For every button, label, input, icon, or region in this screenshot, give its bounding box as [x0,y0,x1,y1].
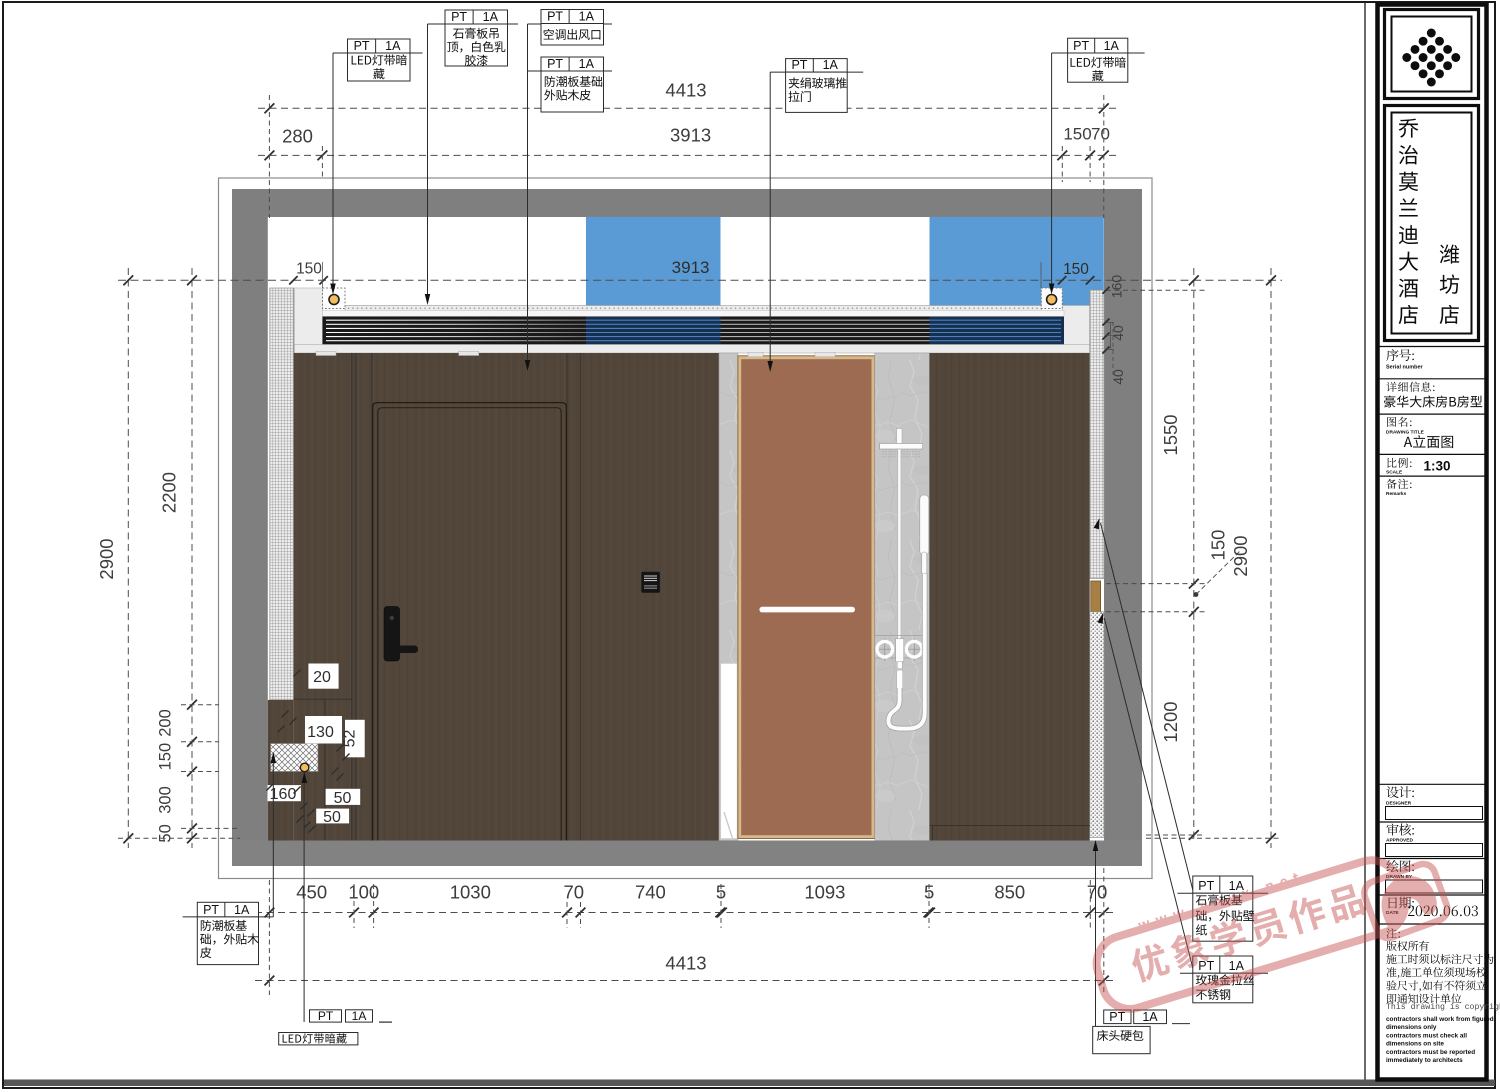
svg-text:52: 52 [342,730,359,748]
svg-text:130: 130 [307,724,334,741]
svg-text:1A: 1A [234,903,250,917]
svg-text:3913: 3913 [670,125,711,146]
svg-text:1A: 1A [352,1009,367,1023]
svg-text:450: 450 [296,882,327,903]
svg-text:300: 300 [157,786,175,814]
svg-text:50: 50 [323,809,341,826]
svg-text:immediately to architects: immediately to architects [1386,1057,1463,1064]
svg-text:PT: PT [318,1009,334,1023]
svg-text:150: 150 [1063,261,1089,278]
svg-text:280: 280 [282,126,313,147]
svg-text:PT: PT [354,39,370,53]
svg-text:40: 40 [1110,369,1126,385]
svg-text:40: 40 [1110,325,1126,341]
svg-text:dimensions on site: dimensions on site [1386,1041,1444,1048]
svg-text:3913: 3913 [672,258,710,277]
svg-text:1A: 1A [1104,39,1120,53]
svg-text:1A: 1A [385,39,401,53]
svg-text:70: 70 [564,882,585,903]
svg-text:200: 200 [157,709,175,737]
svg-text:1200: 1200 [1160,701,1181,742]
svg-text:PT: PT [1198,879,1214,893]
svg-text:2900: 2900 [96,538,117,579]
svg-text:PT: PT [1073,39,1089,53]
svg-text:150: 150 [1208,530,1229,561]
svg-text:1A: 1A [1229,879,1245,893]
svg-text:contractors must check all: contractors must check all [1386,1032,1467,1039]
svg-text:100: 100 [348,882,379,903]
svg-text:1550: 1550 [1160,414,1181,455]
svg-text:70: 70 [1087,882,1108,903]
svg-text:contractors shall work from fi: contractors shall work from figured [1386,1016,1494,1023]
svg-text:1093: 1093 [804,882,845,903]
svg-text:SCALE: SCALE [1386,470,1403,476]
svg-text:20: 20 [313,669,331,686]
svg-text:Remarks: Remarks [1386,491,1407,497]
svg-text:PT: PT [547,57,563,71]
svg-text:4413: 4413 [665,80,706,101]
svg-text:150: 150 [296,261,322,278]
svg-text:50: 50 [157,824,175,842]
svg-text:50: 50 [334,790,352,807]
svg-text:PT: PT [1198,959,1214,973]
svg-text:This drawing is copyright: This drawing is copyright [1386,1002,1500,1012]
svg-text:1A: 1A [1142,1010,1158,1024]
svg-text:APPROVED: APPROVED [1386,838,1413,844]
svg-text:150: 150 [1063,125,1091,144]
svg-text:dimensions only: dimensions only [1386,1024,1437,1031]
svg-text:150: 150 [157,743,175,771]
svg-text:1:30: 1:30 [1423,459,1450,474]
svg-text:2200: 2200 [159,472,180,513]
svg-text:2900: 2900 [1230,535,1251,576]
svg-text:1A: 1A [823,58,839,72]
svg-text:contractors must be reported: contractors must be reported [1386,1049,1475,1056]
svg-text:70: 70 [1091,125,1110,144]
svg-text:1030: 1030 [450,882,491,903]
svg-text:DESIGNER: DESIGNER [1386,801,1412,807]
svg-text:PT: PT [451,10,467,24]
svg-text:1A: 1A [1229,959,1245,973]
svg-text:1A: 1A [579,10,595,24]
svg-text:160: 160 [1109,275,1125,299]
svg-text:740: 740 [635,882,666,903]
svg-text:1A: 1A [483,10,499,24]
svg-text:850: 850 [994,882,1025,903]
svg-text:1A: 1A [579,57,595,71]
svg-text:4413: 4413 [665,953,706,974]
svg-text:PT: PT [547,10,563,24]
svg-text:Serial number: Serial number [1386,365,1424,371]
svg-text:PT: PT [791,58,807,72]
svg-text:DRAWING TITLE: DRAWING TITLE [1386,430,1425,436]
svg-text:PT: PT [203,903,219,917]
